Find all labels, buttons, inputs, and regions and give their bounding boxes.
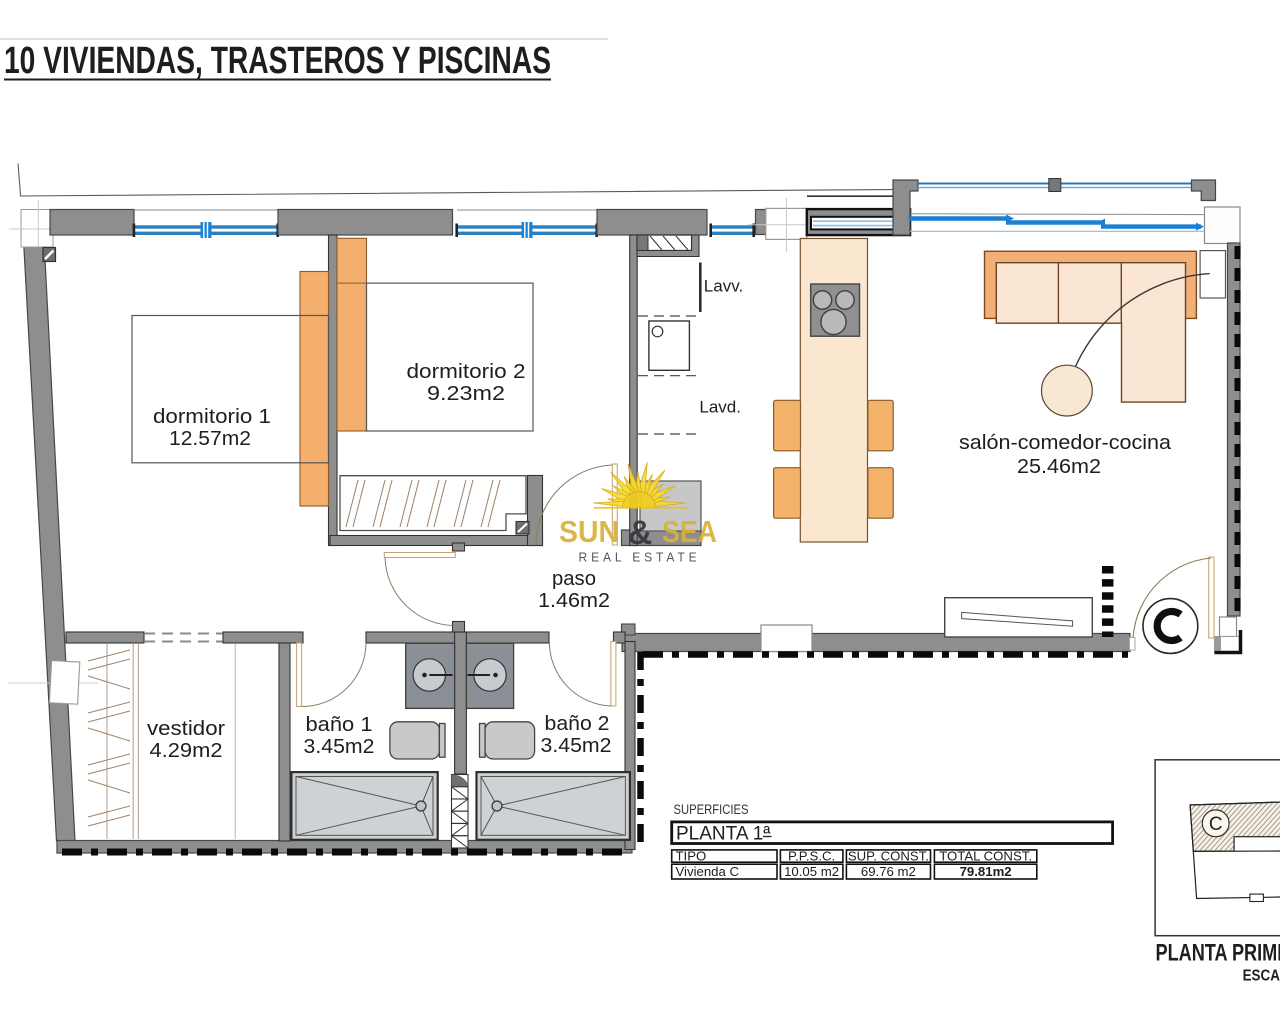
svg-text:69.76 m2: 69.76 m2 bbox=[861, 864, 916, 879]
svg-text:TOTAL CONST.: TOTAL CONST. bbox=[939, 849, 1032, 864]
svg-text:10 VIVIENDAS, TRASTEROS Y PISC: 10 VIVIENDAS, TRASTEROS Y PISCINAS bbox=[4, 40, 551, 82]
svg-text:Vivienda C: Vivienda C bbox=[676, 864, 740, 879]
svg-text:SEA: SEA bbox=[662, 514, 717, 549]
svg-text:baño 2: baño 2 bbox=[545, 712, 610, 735]
svg-text:dormitorio 2: dormitorio 2 bbox=[407, 360, 526, 383]
svg-text:79.81m2: 79.81m2 bbox=[960, 864, 1012, 879]
svg-text:SUPERFICIES: SUPERFICIES bbox=[674, 802, 749, 817]
svg-text:vestidor: vestidor bbox=[147, 717, 225, 740]
svg-text:3.45m2: 3.45m2 bbox=[304, 735, 375, 758]
svg-text:baño 1: baño 1 bbox=[306, 713, 373, 736]
svg-text:salón-comedor-cocina: salón-comedor-cocina bbox=[959, 431, 1172, 454]
svg-text:ESCALA 1/100: ESCALA 1/100 bbox=[1243, 968, 1280, 985]
svg-text:Lavv.: Lavv. bbox=[704, 277, 743, 296]
svg-text:PLANTA PRIMERA: PLANTA PRIMERA bbox=[1156, 940, 1280, 967]
svg-text:4.29m2: 4.29m2 bbox=[150, 739, 223, 762]
svg-text:P.P.S.C.: P.P.S.C. bbox=[788, 849, 835, 864]
svg-text:1.46m2: 1.46m2 bbox=[538, 589, 610, 612]
svg-text:3.45m2: 3.45m2 bbox=[541, 734, 612, 757]
svg-text:paso: paso bbox=[552, 567, 596, 590]
svg-text:dormitorio 1: dormitorio 1 bbox=[153, 405, 271, 428]
svg-text:10.05 m2: 10.05 m2 bbox=[784, 864, 839, 879]
svg-text:TIPO: TIPO bbox=[676, 849, 707, 864]
svg-text:C: C bbox=[1209, 814, 1223, 835]
svg-text:&: & bbox=[628, 514, 653, 552]
svg-text:PLANTA 1ª: PLANTA 1ª bbox=[676, 824, 771, 845]
svg-text:SUN: SUN bbox=[559, 514, 619, 549]
svg-text:12.57m2: 12.57m2 bbox=[169, 427, 251, 450]
svg-text:Lavd.: Lavd. bbox=[699, 398, 741, 417]
svg-text:9.23m2: 9.23m2 bbox=[427, 382, 505, 405]
svg-text:REAL ESTATE: REAL ESTATE bbox=[579, 551, 701, 565]
svg-text:SUP. CONST.: SUP. CONST. bbox=[848, 849, 929, 864]
svg-text:25.46m2: 25.46m2 bbox=[1017, 455, 1101, 478]
